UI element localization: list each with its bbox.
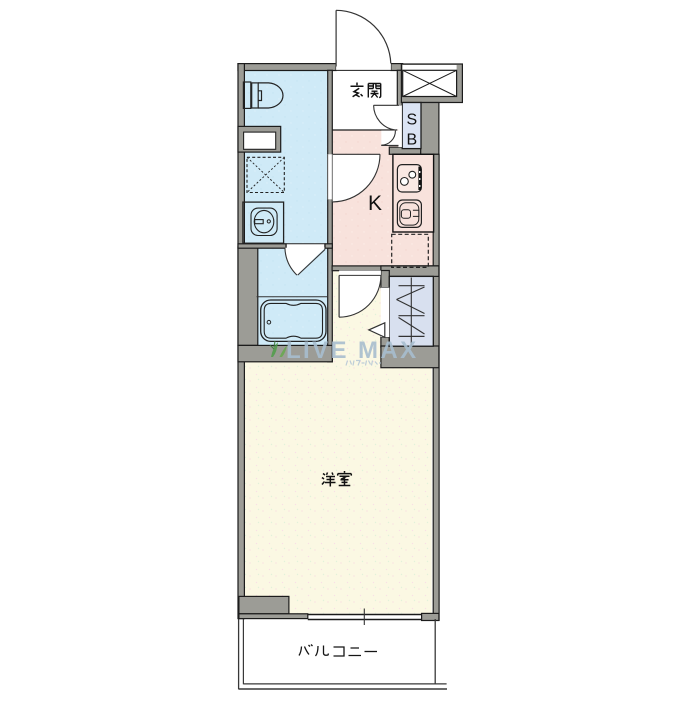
- svg-text:LIVE MAX: LIVE MAX: [286, 337, 419, 364]
- svg-text:K: K: [368, 192, 382, 215]
- svg-text:S: S: [406, 112, 417, 129]
- svg-text:B: B: [406, 132, 417, 149]
